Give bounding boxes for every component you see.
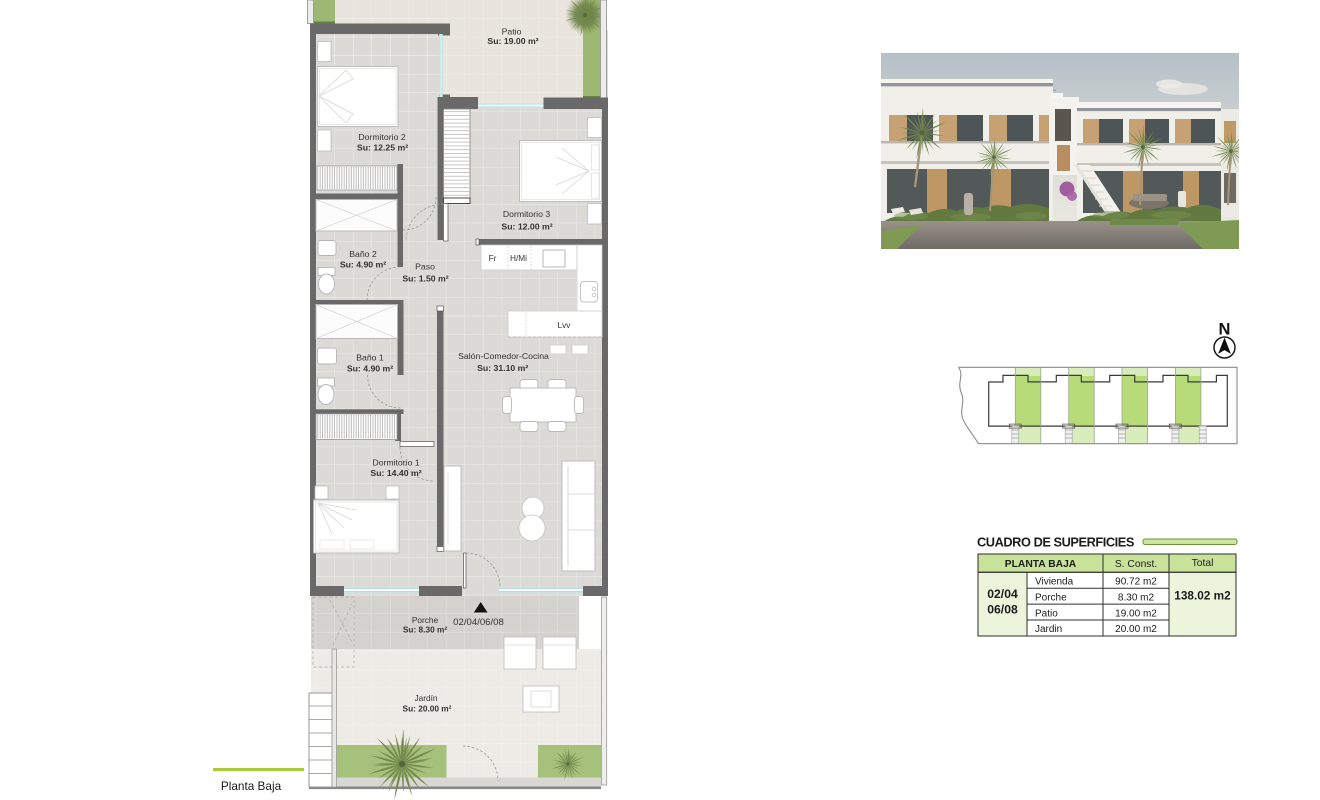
svg-text:Paso: Paso (415, 262, 435, 272)
svg-text:Patio: Patio (1035, 608, 1058, 619)
svg-text:CUADRO DE SUPERFICIES: CUADRO DE SUPERFICIES (977, 535, 1135, 550)
svg-text:S. Const.: S. Const. (1115, 559, 1157, 570)
svg-text:02/04: 02/04 (987, 587, 1018, 601)
svg-text:Baño 1: Baño 1 (356, 353, 384, 363)
svg-text:Fr: Fr (489, 253, 497, 263)
svg-text:8.30 m2: 8.30 m2 (1118, 592, 1155, 603)
svg-text:02/04/06/08: 02/04/06/08 (453, 617, 504, 628)
svg-text:Lvv: Lvv (558, 320, 572, 330)
svg-text:Su: 31.10 m²: Su: 31.10 m² (477, 363, 528, 373)
svg-text:Su: 12.00 m²: Su: 12.00 m² (501, 222, 552, 232)
svg-text:Su: 12.25 m²: Su: 12.25 m² (357, 143, 408, 153)
svg-text:06/08: 06/08 (987, 603, 1018, 617)
svg-text:Su: 20.00 m²: Su: 20.00 m² (403, 704, 452, 714)
svg-text:Planta Baja: Planta Baja (221, 779, 282, 793)
svg-text:Total: Total (1192, 558, 1214, 569)
svg-text:138.02 m2: 138.02 m2 (1174, 589, 1231, 603)
svg-text:Salón-Comedor-Cocina: Salón-Comedor-Cocina (458, 351, 549, 361)
svg-text:Dormitorio 1: Dormitorio 1 (372, 458, 419, 468)
svg-text:Su: 8.30 m²: Su: 8.30 m² (403, 625, 448, 635)
svg-text:90.72 m2: 90.72 m2 (1115, 577, 1157, 588)
svg-text:Patio: Patio (502, 27, 522, 37)
svg-text:Su: 4.90 m²: Su: 4.90 m² (347, 364, 393, 374)
svg-text:Vivienda: Vivienda (1035, 577, 1074, 588)
svg-text:19.00 m2: 19.00 m2 (1115, 608, 1157, 619)
svg-text:Jardin: Jardin (1035, 624, 1062, 635)
svg-text:20.00 m2: 20.00 m2 (1115, 624, 1157, 635)
svg-text:Jardín: Jardín (414, 693, 437, 703)
svg-text:Dormitorio 2: Dormitorio 2 (358, 132, 405, 142)
svg-text:Porche: Porche (1035, 592, 1067, 603)
svg-text:PLANTA BAJA: PLANTA BAJA (1005, 559, 1077, 570)
svg-text:Su: 19.00 m²: Su: 19.00 m² (487, 36, 538, 46)
svg-text:H/Mi: H/Mi (510, 253, 527, 263)
svg-text:Dormitorio 3: Dormitorio 3 (503, 209, 550, 219)
svg-text:N: N (1219, 321, 1231, 339)
svg-text:Baño 2: Baño 2 (349, 249, 377, 259)
svg-text:Su: 4.90 m²: Su: 4.90 m² (340, 260, 386, 270)
svg-text:Su: 1.50 m²: Su: 1.50 m² (402, 274, 448, 284)
svg-text:Porche: Porche (412, 615, 439, 625)
svg-text:Su: 14.40 m²: Su: 14.40 m² (370, 468, 421, 478)
